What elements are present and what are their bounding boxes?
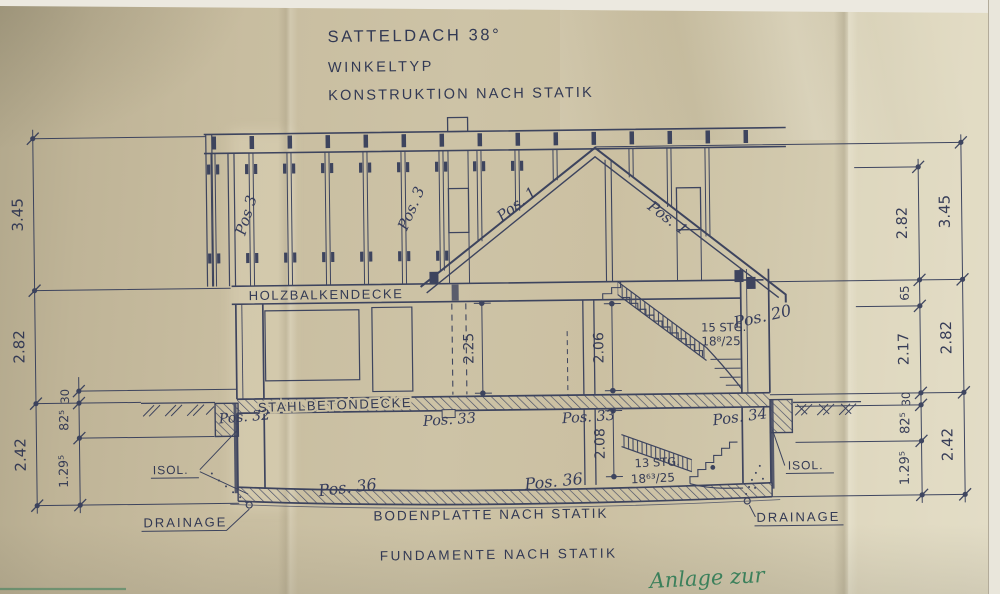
- photo-background-right-edge: [988, 0, 1000, 594]
- green-note: Anlage zur: [647, 563, 767, 593]
- ground-hatch-right: [793, 402, 861, 416]
- king-post: [605, 160, 612, 282]
- wing-roof-band: [204, 127, 786, 153]
- pos-basement-support-right: Pos. 33: [560, 408, 615, 427]
- dim-interior-1: 2.25: [461, 333, 477, 364]
- scanned-drawing-photo: SATTELDACH 38° WINKELTYP KONSTRUKTION NA…: [0, 0, 1000, 594]
- label-floor-slab: BODENPLATTE NACH STATIK: [373, 506, 608, 524]
- dim-right-outer-3: 2.42: [938, 428, 956, 462]
- footing-ledge-right: [770, 399, 792, 432]
- label-foundations: FUNDAMENTE NACH STATIK: [380, 546, 618, 564]
- dim-right-inner-1: 2.82: [895, 207, 911, 239]
- dim-right-outer-1: 3.45: [936, 195, 954, 229]
- label-insulation-left: ISOL.: [153, 463, 189, 477]
- door-dashed-line: [567, 331, 568, 395]
- dim-right-outer-2: 2.82: [937, 321, 955, 355]
- dim-left-inner-1: 30: [58, 389, 72, 404]
- pos-rafter-left: Pos. 1: [492, 183, 540, 226]
- label-insulation-right: ISOL.: [788, 458, 824, 472]
- label-drainage-left: DRAINAGE: [143, 514, 227, 530]
- dim-left-inner-2: 82⁵: [56, 410, 71, 431]
- dim-right-inner-5: 82⁵: [898, 412, 913, 434]
- stair-lower-ratio: 18⁶³/25: [630, 470, 675, 486]
- dim-interior-2: 2.06: [591, 332, 607, 363]
- dimension-chains: [27, 118, 972, 513]
- dim-interior-3: 2.08: [592, 428, 608, 459]
- pos-basement-support-left: Pos. 33: [422, 411, 477, 430]
- pos-wall-stud-mid: Pos. 3: [394, 184, 429, 234]
- dim-left-outer-2: 2.82: [10, 330, 28, 364]
- dim-right-inner-3: 2.17: [896, 333, 912, 365]
- pos-basement-wall-left: Pos. 32: [217, 407, 270, 427]
- drawing-title-roof: SATTELDACH 38°: [327, 26, 501, 46]
- stair-lower-count: 13 STG.: [634, 454, 680, 470]
- drawing-texts: SATTELDACH 38° WINKELTYP KONSTRUKTION NA…: [6, 20, 957, 568]
- dim-right-inner-4: 30: [899, 392, 913, 407]
- label-timber-ceiling: HOLZBALKENDECKE: [249, 286, 404, 303]
- dim-left-outer-1: 3.45: [8, 198, 26, 232]
- drawing-title-type: WINKELTYP: [328, 59, 434, 76]
- interior-opening-1: [265, 310, 360, 381]
- left-upper-wall: [206, 134, 236, 286]
- dim-left-outer-3: 2.42: [11, 438, 29, 472]
- dim-right-inner-6: 1.29⁵: [898, 451, 913, 485]
- interior-opening-2: [372, 307, 413, 391]
- ground-hatch-left: [141, 402, 215, 416]
- pos-wall-stud-left: Pos 3: [231, 193, 261, 238]
- green-annotations: Anlage zur: [0, 563, 767, 593]
- drawing-title-construction: KONSTRUKTION NACH STATIK: [328, 85, 594, 104]
- label-drainage-right: DRAINAGE: [756, 509, 840, 525]
- section-drawing: SATTELDACH 38° WINKELTYP KONSTRUKTION NA…: [0, 0, 1000, 594]
- stair-upper-ratio: 18⁸/25: [701, 334, 741, 348]
- dim-left-inner-3: 1.29⁵: [56, 455, 71, 488]
- dim-right-inner-2: 65: [898, 285, 912, 300]
